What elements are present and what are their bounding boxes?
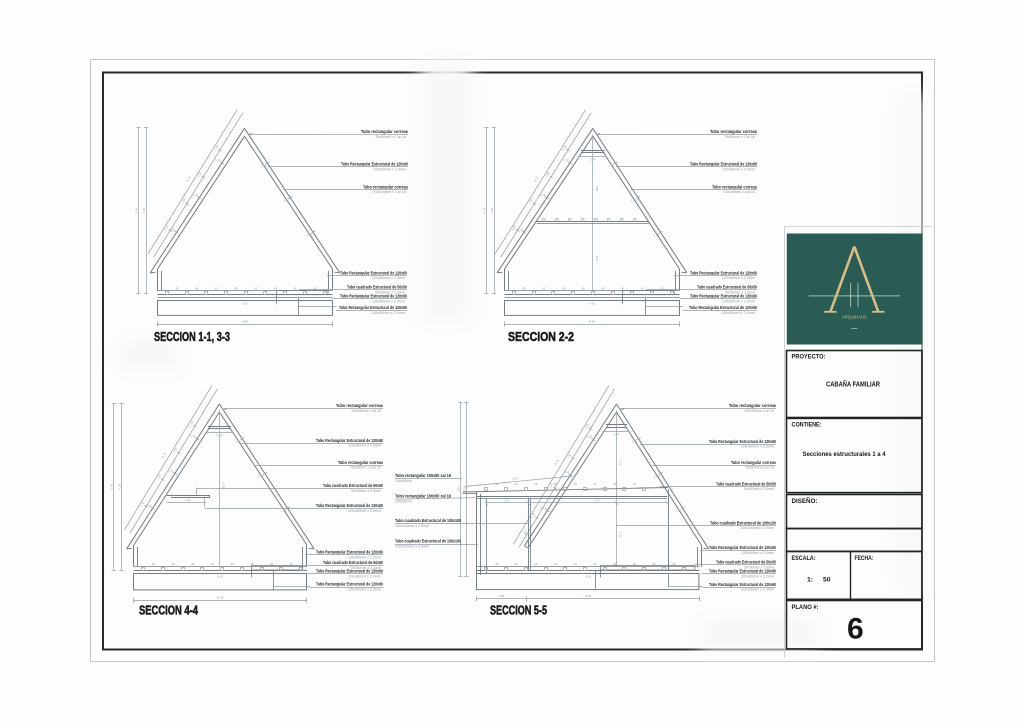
- svg-text:1.10: 1.10: [283, 198, 289, 202]
- svg-text:120x60mm x 2.3mm: 120x60mm x 2.3mm: [348, 588, 381, 592]
- svg-text:8.16: 8.16: [218, 574, 224, 578]
- svg-text:75x50mm Cal 16: 75x50mm Cal 16: [745, 466, 774, 470]
- svg-text:.45: .45: [561, 287, 565, 291]
- svg-text:2.42: 2.42: [512, 476, 518, 480]
- svg-text:PROYECTO:: PROYECTO:: [792, 354, 826, 361]
- svg-text:Tubo cuadrado Estructural de 1: Tubo cuadrado Estructural de 100x100: [395, 518, 462, 523]
- svg-text:.45: .45: [234, 287, 238, 291]
- svg-text:Tubo Rectangular Estructural d: Tubo Rectangular Estructural de 120x60: [709, 569, 777, 574]
- svg-text:100x100mm x 2.0mm: 100x100mm x 2.0mm: [395, 524, 429, 528]
- svg-text:Tubo Rectangular Estructural d: Tubo Rectangular Estructural de 120x60: [316, 550, 384, 555]
- svg-text:SECCION 1-1, 3-3: SECCION 1-1, 3-3: [154, 329, 230, 344]
- svg-text:1.10: 1.10: [235, 439, 241, 443]
- svg-text:.45: .45: [620, 287, 624, 291]
- svg-text:Tubo cuadrado Estructural de 5: Tubo cuadrado Estructural de 50x50: [323, 483, 384, 488]
- svg-text:.45: .45: [613, 482, 617, 486]
- svg-text:100x50mm Cal 16: 100x50mm Cal 16: [351, 409, 381, 413]
- svg-text:.45: .45: [514, 562, 518, 566]
- svg-text:1.10: 1.10: [258, 474, 264, 478]
- svg-text:.45: .45: [573, 482, 577, 486]
- svg-text:2.02: 2.02: [595, 256, 599, 262]
- svg-text:.45: .45: [553, 562, 557, 566]
- svg-text:.45: .45: [273, 287, 277, 291]
- svg-text:120x60mm x 2.2mm: 120x60mm x 2.2mm: [348, 555, 381, 559]
- svg-text:120x60mm x 2.0mm: 120x60mm x 2.0mm: [741, 551, 774, 555]
- svg-text:100x100mm x 2.0mm: 100x100mm x 2.0mm: [395, 544, 429, 548]
- svg-text:1.10: 1.10: [632, 439, 638, 443]
- svg-text:100x100mm x 2.0mm: 100x100mm x 2.0mm: [740, 526, 774, 530]
- svg-text:120x60mm x 2.0mm: 120x60mm x 2.0mm: [371, 311, 405, 315]
- svg-text:Tubo Rectangular Estructural d: Tubo Rectangular Estructural de 120x60: [316, 503, 384, 508]
- svg-text:1.10: 1.10: [563, 158, 569, 162]
- svg-text:1.10: 1.10: [306, 233, 312, 237]
- svg-text:.45: .45: [494, 562, 498, 566]
- svg-text:8.16: 8.16: [589, 301, 595, 305]
- svg-text:1:: 1:: [807, 577, 813, 584]
- svg-text:120x60mm x 2.0mm: 120x60mm x 2.0mm: [721, 311, 755, 315]
- svg-text:50x50mm x 2.0mm: 50x50mm x 2.0mm: [744, 487, 774, 491]
- svg-text:Tubo Rectangular Estructural d: Tubo Rectangular Estructural de 120x60: [709, 439, 777, 444]
- svg-text:2.16: 2.16: [619, 460, 623, 466]
- svg-text:FECHA:: FECHA:: [855, 555, 874, 562]
- svg-text:1.61: 1.61: [185, 498, 191, 502]
- svg-text:120x60mm x 2.3mm: 120x60mm x 2.3mm: [722, 299, 755, 303]
- svg-text:2.71: 2.71: [594, 499, 600, 503]
- svg-text:1.10: 1.10: [587, 435, 593, 439]
- svg-text:Tubo cuadrado Estructural de 1: Tubo cuadrado Estructural de 100x100: [710, 520, 777, 525]
- svg-text:.45: .45: [175, 287, 179, 291]
- svg-text:Secciones estructurales 1 a 4: Secciones estructurales 1 a 4: [803, 451, 886, 458]
- svg-text:120x60mm x 2.3mm: 120x60mm x 2.3mm: [741, 588, 774, 592]
- svg-text:.45: .45: [194, 287, 198, 291]
- svg-text:Tubo rectangular correas: Tubo rectangular correas: [361, 129, 409, 134]
- svg-text:120x60mm x 2.3mm: 120x60mm x 2.3mm: [372, 276, 405, 280]
- svg-text:.45: .45: [151, 562, 155, 566]
- svg-text:.45: .45: [230, 562, 234, 566]
- svg-text:8.46: 8.46: [242, 320, 248, 324]
- svg-text:120x60mm x 2.0mm: 120x60mm x 2.0mm: [348, 444, 381, 448]
- svg-text:1.10: 1.10: [281, 509, 287, 513]
- svg-text:Cocorreas x cal 16: Cocorreas x cal 16: [723, 190, 755, 194]
- svg-text:75x50mm x Cal 16: 75x50mm x Cal 16: [350, 466, 381, 470]
- svg-text:100x50mm: 100x50mm: [395, 500, 412, 504]
- svg-text:Tubo rectangular correas: Tubo rectangular correas: [729, 403, 777, 408]
- svg-text:.45: .45: [210, 562, 214, 566]
- svg-text:.45: .45: [534, 482, 538, 486]
- svg-text:.45: .45: [522, 287, 526, 291]
- svg-text:.45: .45: [660, 287, 664, 291]
- svg-text:1.96: 1.96: [499, 594, 505, 598]
- svg-text:.45: .45: [553, 482, 557, 486]
- svg-text:2.08: 2.08: [595, 186, 599, 192]
- svg-text:75x50mm x Cal 16: 75x50mm x Cal 16: [724, 135, 755, 139]
- svg-text:DISEÑO:: DISEÑO:: [792, 496, 818, 505]
- svg-text:SECCION 4-4: SECCION 4-4: [139, 603, 199, 618]
- svg-text:120x60mm x 2.0mm: 120x60mm x 2.0mm: [348, 574, 381, 578]
- svg-text:.45: .45: [573, 562, 577, 566]
- svg-text:120x60mm x 2.3mm: 120x60mm x 2.3mm: [372, 299, 405, 303]
- svg-text:Tubo rectangular correas: Tubo rectangular correas: [712, 184, 758, 189]
- svg-text:Tubo Rectangular Estructural d: Tubo Rectangular Estructural de 120x60: [340, 270, 408, 275]
- svg-text:Tubo Rectangular Estructural d: Tubo Rectangular Estructural de 120x60: [340, 294, 408, 299]
- svg-text:120x60mm x 2.2mm: 120x60mm x 2.2mm: [741, 574, 774, 578]
- svg-text:1.10: 1.10: [260, 164, 266, 168]
- svg-text:5.46: 5.46: [482, 207, 486, 213]
- svg-text:Tubo Rectangular Estructural d: Tubo Rectangular Estructural de 120x60: [316, 438, 384, 443]
- svg-text:.45: .45: [191, 562, 195, 566]
- svg-text:120x60mm x 2.3mm: 120x60mm x 2.3mm: [722, 276, 755, 280]
- svg-text:Tubo rectangular correas: Tubo rectangular correas: [338, 460, 384, 465]
- svg-text:1.10: 1.10: [654, 233, 660, 237]
- svg-text:Tubo Rectangular Estructural d: Tubo Rectangular Estructural de 120x60: [690, 162, 758, 167]
- svg-text:.45: .45: [581, 287, 585, 291]
- svg-text:.45: .45: [593, 562, 597, 566]
- svg-text:1.10: 1.10: [654, 474, 660, 478]
- svg-text:Tubo Rectangular Estructural d: Tubo Rectangular Estructural de 120x60: [316, 569, 384, 574]
- svg-text:.45: .45: [214, 287, 218, 291]
- svg-text:8.16: 8.16: [242, 301, 248, 305]
- svg-text:1.35: 1.35: [619, 532, 623, 538]
- svg-text:CABAÑA FAMILIAR: CABAÑA FAMILIAR: [826, 380, 880, 389]
- svg-text:Tubo Rectangular Estructural d: Tubo Rectangular Estructural de 120x60: [339, 305, 408, 310]
- svg-text:75x50mm x Cal 16: 75x50mm x Cal 16: [375, 135, 406, 139]
- svg-text:.45: .45: [514, 482, 518, 486]
- svg-text:8.16: 8.16: [586, 574, 592, 578]
- svg-text:SECCION 2-2: SECCION 2-2: [508, 329, 574, 344]
- svg-text:ESCALA:: ESCALA:: [792, 555, 816, 562]
- svg-text:.45: .45: [494, 482, 498, 486]
- svg-text:6.50: 6.50: [142, 207, 146, 213]
- svg-text:(75x50)mm x Cal 16: (75x50)mm x Cal 16: [372, 190, 406, 194]
- svg-text:PLANO #:: PLANO #:: [792, 604, 819, 611]
- svg-text:Tubo cuadrado Estructural de 5: Tubo cuadrado Estructural de 50x50: [323, 560, 384, 565]
- svg-text:.45: .45: [293, 287, 297, 291]
- svg-text:8.46: 8.46: [589, 320, 595, 324]
- svg-text:Tubo rectangular 100x50 cal 16: Tubo rectangular 100x50 cal 16: [395, 473, 452, 478]
- svg-text:Tubo Rectangular Estructural d: Tubo Rectangular Estructural de 120x60: [316, 582, 384, 587]
- svg-text:.45: .45: [254, 287, 258, 291]
- svg-text:Tubo Rectangular Estructural d: Tubo Rectangular Estructural de 120x60: [341, 162, 409, 167]
- svg-text:1.10: 1.10: [631, 198, 637, 202]
- svg-text:1.10: 1.10: [215, 158, 221, 162]
- svg-text:8.46: 8.46: [217, 596, 223, 600]
- svg-text:Tubo Rectangular Estructural d: Tubo Rectangular Estructural de 120x60: [709, 545, 777, 550]
- svg-text:.45: .45: [534, 562, 538, 566]
- svg-text:SECCION 5-5: SECCION 5-5: [490, 603, 547, 618]
- svg-text:120x60mm x 2.0mm: 120x60mm x 2.0mm: [348, 509, 381, 513]
- svg-text:6: 6: [847, 613, 864, 646]
- svg-text:6.50: 6.50: [490, 207, 494, 213]
- svg-text:1.10: 1.10: [608, 164, 614, 168]
- svg-text:.45: .45: [601, 287, 605, 291]
- svg-text:ARQUIHAUS: ARQUIHAUS: [842, 315, 867, 320]
- svg-text:Tubo Rectangular Estructural d: Tubo Rectangular Estructural de 120x60: [709, 582, 777, 587]
- svg-text:1.10: 1.10: [190, 434, 196, 438]
- svg-text:2.21: 2.21: [504, 499, 510, 503]
- svg-text:5.46: 5.46: [134, 207, 138, 213]
- svg-text:120x60mm x 2.0mm: 120x60mm x 2.0mm: [373, 167, 406, 171]
- svg-text:.45: .45: [313, 287, 317, 291]
- svg-text:120x60mm x 2.0mm: 120x60mm x 2.0mm: [722, 167, 755, 171]
- svg-text:CONTIENE:: CONTIENE:: [792, 421, 822, 428]
- svg-text:50: 50: [823, 577, 831, 584]
- svg-text:4.18: 4.18: [221, 483, 225, 489]
- svg-text:1.10: 1.10: [676, 509, 682, 513]
- svg-text:100x50mm: 100x50mm: [395, 479, 412, 483]
- svg-text:5.46: 5.46: [110, 484, 114, 490]
- svg-text:Tubo cuadrado Estructural de 5: Tubo cuadrado Estructural de 50x50: [347, 285, 408, 290]
- svg-text:Tubo cuadrado Estructural de 5: Tubo cuadrado Estructural de 50x50: [716, 560, 777, 565]
- svg-text:0.78: 0.78: [590, 158, 596, 162]
- svg-text:Tubo Rectangular Estructural d: Tubo Rectangular Estructural de 120x60: [690, 294, 758, 299]
- svg-text:.45: .45: [171, 562, 175, 566]
- svg-text:.45: .45: [542, 287, 546, 291]
- svg-text:Tubo cuadrado Estructural de 5: Tubo cuadrado Estructural de 50x50: [697, 285, 758, 290]
- svg-text:Tubo Rectangular Estructural d: Tubo Rectangular Estructural de 120x60: [690, 270, 758, 275]
- svg-text:Tubo rectangular correas: Tubo rectangular correas: [731, 460, 777, 465]
- svg-text:6.40: 6.40: [585, 594, 591, 598]
- svg-text:Tubo cuadrado Estructural de 1: Tubo cuadrado Estructural de 100x100: [395, 539, 462, 544]
- svg-text:.45: .45: [593, 482, 597, 486]
- svg-text:3.96: 3.96: [456, 486, 460, 492]
- svg-text:.45: .45: [640, 287, 644, 291]
- svg-text:Tubo cuadrado Estructural de 5: Tubo cuadrado Estructural de 50x50: [716, 481, 777, 486]
- svg-text:100x50mm Cal 16: 100x50mm Cal 16: [744, 409, 774, 413]
- svg-text:6.50: 6.50: [117, 484, 121, 490]
- svg-text:.45: .45: [632, 482, 636, 486]
- svg-text:120x60mm x 2.0mm: 120x60mm x 2.0mm: [741, 445, 774, 449]
- svg-text:Tubo rectangular correas: Tubo rectangular correas: [336, 403, 384, 408]
- svg-text:1.06: 1.06: [462, 486, 466, 492]
- svg-text:Tubo rectangular correas: Tubo rectangular correas: [363, 184, 409, 189]
- svg-text:Tubo rectangular correas: Tubo rectangular correas: [710, 129, 758, 134]
- svg-text:50x50mm x 2.0mm: 50x50mm x 2.0mm: [351, 489, 381, 493]
- svg-text:Tubo Rectangular Estructural d: Tubo Rectangular Estructural de 120x60: [689, 305, 758, 310]
